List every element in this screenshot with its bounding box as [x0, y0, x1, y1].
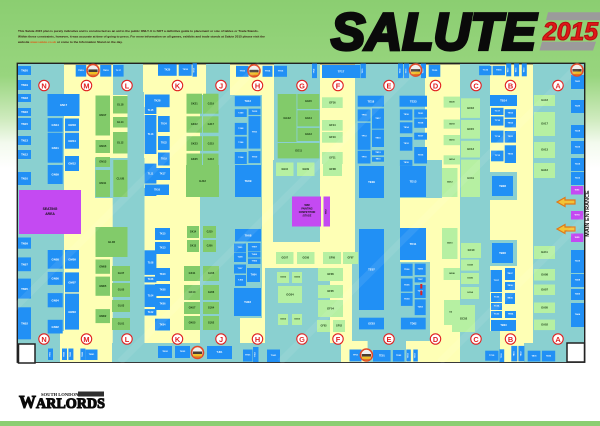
svg-text:GM08: GM08 — [99, 264, 107, 268]
svg-text:GF16: GF16 — [329, 100, 336, 104]
svg-text:GJ12: GJ12 — [199, 179, 206, 183]
svg-text:TF17: TF17 — [338, 70, 345, 74]
svg-text:TJ08: TJ08 — [238, 257, 244, 259]
svg-text:L: L — [125, 81, 130, 90]
svg-text:TD20: TD20 — [432, 70, 438, 72]
svg-text:GA08: GA08 — [541, 272, 548, 276]
svg-text:TL02: TL02 — [148, 311, 154, 314]
svg-text:TE13: TE13 — [375, 152, 381, 154]
svg-text:TH04: TH04 — [251, 274, 258, 277]
svg-text:TH01: TH01 — [245, 355, 251, 357]
svg-text:GC16: GC16 — [467, 106, 474, 110]
svg-text:TN13: TN13 — [21, 139, 28, 143]
svg-text:GN11: GN11 — [52, 146, 60, 150]
svg-text:TH03: TH03 — [244, 300, 251, 304]
svg-text:TN02: TN02 — [21, 322, 28, 326]
svg-text:GG05: GG05 — [280, 277, 287, 279]
svg-text:GL06: GL06 — [108, 240, 115, 244]
svg-text:TA21: TA21 — [575, 80, 581, 83]
svg-text:TK18: TK18 — [183, 69, 189, 71]
svg-text:TE01: TE01 — [379, 354, 385, 357]
svg-text:WS5: WS5 — [575, 237, 581, 239]
svg-text:GG12: GG12 — [283, 116, 291, 120]
svg-text:GL07: GL07 — [118, 271, 125, 275]
svg-text:B: B — [508, 81, 513, 90]
svg-text:TL04: TL04 — [148, 294, 154, 297]
svg-text:GC06: GC06 — [467, 278, 473, 280]
svg-text:TN09: TN09 — [21, 241, 28, 245]
svg-text:TK10: TK10 — [160, 273, 167, 276]
svg-text:TB10: TB10 — [508, 153, 514, 155]
svg-text:TD17: TD17 — [418, 135, 424, 137]
svg-text:GA02: GA02 — [541, 323, 548, 327]
svg-text:TN19: TN19 — [21, 83, 28, 87]
svg-text:GC08: GC08 — [467, 264, 473, 266]
svg-text:GG14: GG14 — [305, 116, 312, 120]
svg-text:TJ07: TJ07 — [238, 268, 244, 270]
svg-text:TH05: TH05 — [252, 260, 258, 262]
svg-text:GD12: GD12 — [447, 182, 453, 184]
svg-text:TH07: TH07 — [252, 246, 258, 248]
svg-text:GC15: GC15 — [467, 127, 474, 131]
svg-text:D: D — [433, 81, 439, 90]
svg-text:TG01: TG01 — [271, 355, 277, 357]
svg-text:TD13: TD13 — [410, 180, 417, 184]
svg-text:GE03: GE03 — [368, 321, 375, 325]
svg-text:TN05: TN05 — [21, 287, 28, 291]
svg-text:GG11: GG11 — [295, 148, 302, 152]
svg-text:TB06: TB06 — [499, 251, 506, 255]
svg-text:L: L — [125, 335, 130, 344]
svg-text:AREA: AREA — [45, 212, 55, 216]
svg-text:TC16: TC16 — [483, 70, 489, 72]
svg-text:GL12: GL12 — [117, 140, 124, 144]
svg-text:TJ01: TJ01 — [217, 350, 223, 354]
svg-text:SALUTE: SALUTE — [331, 4, 537, 62]
svg-text:TK17: TK17 — [160, 173, 167, 176]
svg-text:A: A — [555, 335, 561, 344]
svg-text:GK14: GK14 — [190, 231, 197, 234]
svg-text:TA16: TA16 — [575, 146, 581, 149]
svg-text:GA07: GA07 — [541, 287, 548, 291]
svg-text:GA05: GA05 — [541, 305, 548, 309]
svg-text:SOUTH LONDON: SOUTH LONDON — [41, 392, 79, 397]
svg-text:GG13: GG13 — [305, 132, 312, 136]
svg-text:TN15: TN15 — [21, 122, 28, 126]
svg-text:K: K — [175, 81, 181, 90]
svg-text:M: M — [83, 335, 89, 344]
svg-text:TD15: TD15 — [418, 154, 424, 156]
svg-text:GM15: GM15 — [99, 144, 107, 148]
svg-text:TM05: TM05 — [70, 351, 72, 357]
svg-text:TN07: TN07 — [21, 263, 28, 267]
svg-text:GM13: GM13 — [99, 160, 107, 164]
svg-text:TD11: TD11 — [410, 242, 417, 246]
svg-text:TE11: TE11 — [375, 159, 381, 161]
svg-text:TH15: TH15 — [240, 71, 246, 73]
svg-text:TF13: TF13 — [362, 136, 368, 138]
svg-text:GJ06: GJ06 — [208, 290, 215, 294]
svg-text:TN16: TN16 — [21, 110, 28, 114]
svg-text:TN10: TN10 — [21, 177, 28, 181]
svg-text:TE02: TE02 — [396, 355, 402, 357]
svg-text:TE14: TE14 — [404, 126, 410, 129]
svg-text:TE23: TE23 — [410, 99, 417, 103]
svg-text:TL08: TL08 — [148, 261, 154, 264]
svg-text:GL03: GL03 — [118, 304, 125, 308]
svg-text:GF06: GF06 — [327, 272, 334, 276]
svg-text:J: J — [219, 335, 223, 344]
svg-text:GM11: GM11 — [99, 181, 106, 185]
svg-text:TC03: TC03 — [494, 314, 500, 316]
svg-text:GK21: GK21 — [191, 101, 198, 105]
svg-text:TE17: TE17 — [375, 118, 381, 120]
svg-text:TH10: TH10 — [252, 156, 258, 158]
svg-text:GK25: GK25 — [191, 157, 198, 161]
svg-text:WTG: WTG — [575, 214, 580, 216]
svg-text:TD05: TD05 — [404, 284, 410, 286]
svg-text:TA02: TA02 — [546, 354, 552, 357]
svg-text:TB04: TB04 — [508, 313, 514, 316]
svg-text:GG08: GG08 — [303, 257, 310, 260]
svg-text:TB12: TB12 — [508, 122, 514, 124]
svg-text:TH12: TH12 — [252, 111, 258, 113]
svg-text:GF14: GF14 — [329, 123, 336, 127]
svg-text:GN09: GN09 — [52, 173, 60, 177]
svg-text:GN04: GN04 — [52, 298, 60, 302]
svg-text:F: F — [336, 81, 341, 90]
svg-text:GM14: GM14 — [68, 139, 76, 143]
svg-text:TA20: TA20 — [575, 105, 581, 108]
svg-text:TC05: TC05 — [494, 297, 500, 299]
svg-text:TL13: TL13 — [148, 133, 154, 136]
svg-text:TD18: TD18 — [418, 122, 424, 124]
svg-text:E: E — [387, 335, 392, 344]
svg-text:H: H — [255, 335, 260, 344]
svg-text:2015: 2015 — [542, 18, 599, 46]
svg-text:GC02: GC02 — [460, 317, 468, 321]
svg-text:GD14: GD14 — [449, 158, 455, 161]
svg-text:TD02: TD02 — [410, 321, 417, 325]
svg-text:TM06: TM06 — [64, 351, 66, 357]
svg-text:TJ06: TJ06 — [238, 142, 244, 144]
svg-text:GG03: GG03 — [294, 319, 301, 321]
svg-text:TH11: TH11 — [252, 132, 258, 134]
svg-text:TM18: TM18 — [103, 70, 109, 72]
svg-text:TA10: TA10 — [575, 260, 581, 263]
svg-text:GF06: GF06 — [329, 257, 336, 260]
svg-text:D: D — [433, 335, 439, 344]
svg-text:TB13: TB13 — [508, 113, 514, 115]
svg-text:TE21: TE21 — [418, 113, 424, 115]
svg-text:GJ10: GJ10 — [207, 231, 214, 234]
svg-text:/STAGE: /STAGE — [303, 215, 312, 218]
svg-text:TB08: TB08 — [499, 184, 506, 188]
svg-text:B: B — [508, 335, 513, 344]
svg-text:TC07: TC07 — [494, 280, 500, 282]
svg-text:GM12: GM12 — [68, 162, 76, 166]
svg-text:TM03: TM03 — [82, 351, 84, 357]
svg-text:GD08: GD08 — [449, 273, 455, 275]
svg-text:WS1: WS1 — [575, 189, 581, 191]
svg-text:TA14: TA14 — [575, 163, 581, 166]
svg-text:GF08: GF08 — [329, 167, 336, 171]
svg-text:TK02: TK02 — [162, 351, 168, 353]
svg-text:GM02: GM02 — [99, 314, 107, 318]
svg-text:TJ09: TJ09 — [238, 112, 244, 114]
svg-text:TC14: TC14 — [495, 135, 501, 138]
svg-text:GK05: GK05 — [189, 321, 196, 325]
svg-text:GD10: GD10 — [447, 243, 453, 245]
svg-text:TB14: TB14 — [500, 99, 507, 103]
svg-text:GN02: GN02 — [52, 325, 60, 329]
svg-text:TE15: TE15 — [375, 138, 381, 140]
svg-text:GF05: GF05 — [327, 289, 334, 293]
svg-text:TL06: TL06 — [148, 278, 154, 281]
svg-text:GM18: GM18 — [68, 123, 76, 127]
svg-text:GK11: GK11 — [189, 271, 196, 275]
svg-text:F: F — [336, 335, 341, 344]
svg-text:GL01: GL01 — [118, 322, 125, 326]
svg-text:TF01: TF01 — [353, 355, 359, 357]
svg-text:GD18: GD18 — [449, 123, 455, 125]
svg-text:GG02: GG02 — [280, 319, 287, 321]
svg-text:GC04: GC04 — [467, 291, 473, 294]
svg-text:TK06: TK06 — [160, 303, 167, 306]
svg-text:TH16: TH16 — [278, 71, 284, 73]
svg-text:GL05: GL05 — [118, 288, 125, 292]
svg-text:GD16: GD16 — [449, 139, 455, 141]
svg-text:GG07: GG07 — [282, 257, 289, 260]
svg-text:TK16: TK16 — [154, 188, 161, 191]
svg-text:TC17: TC17 — [495, 111, 501, 113]
svg-text:TK08: TK08 — [160, 289, 167, 292]
svg-text:TB16: TB16 — [496, 70, 502, 72]
svg-text:GA13: GA13 — [541, 148, 548, 152]
svg-text:GM07: GM07 — [68, 281, 76, 285]
svg-text:TA18: TA18 — [575, 130, 581, 133]
svg-text:TD09: TD09 — [418, 269, 424, 271]
svg-text:TC13: TC13 — [495, 155, 501, 157]
svg-text:WS2: WS2 — [326, 209, 328, 215]
svg-text:TK24: TK24 — [161, 123, 168, 126]
svg-text:TD04: TD04 — [404, 298, 410, 301]
svg-text:GN17: GN17 — [60, 103, 68, 107]
svg-text:TB03: TB03 — [500, 323, 507, 327]
svg-text:TC01: TC01 — [489, 355, 495, 357]
svg-text:TJ05: TJ05 — [238, 280, 244, 282]
svg-text:TE09: TE09 — [368, 180, 375, 184]
svg-text:GG15: GG15 — [305, 99, 312, 103]
svg-text:GN06: GN06 — [52, 277, 60, 281]
svg-text:GG04: GG04 — [286, 293, 294, 297]
svg-text:TD06: TD06 — [404, 269, 410, 271]
svg-text:M: M — [83, 81, 89, 90]
svg-text:C: C — [473, 81, 479, 90]
svg-text:TE12: TE12 — [404, 143, 410, 145]
svg-text:GJ17: GJ17 — [208, 122, 215, 126]
svg-text:TE10: TE10 — [404, 162, 410, 164]
svg-text:GM03: GM03 — [68, 310, 76, 314]
svg-text:TK03: TK03 — [180, 351, 186, 353]
svg-text:GL18: GL18 — [117, 102, 124, 106]
svg-text:N: N — [41, 81, 46, 90]
svg-text:TH06: TH06 — [252, 254, 258, 256]
svg-text:GK13: GK13 — [190, 245, 197, 248]
svg-text:TE18: TE18 — [368, 99, 375, 103]
svg-text:GJ12: GJ12 — [208, 157, 215, 161]
svg-text:GN14: GN14 — [52, 123, 60, 127]
svg-text:This Salute 2015 plan is purel: This Salute 2015 plan is purely indicati… — [18, 29, 259, 33]
svg-text:K: K — [175, 335, 181, 344]
svg-text:TB07: TB07 — [507, 273, 513, 275]
svg-text:GF02: GF02 — [336, 325, 343, 328]
svg-text:TM19: TM19 — [78, 70, 84, 72]
svg-text:SEATING: SEATING — [43, 207, 58, 211]
svg-text:Within these constraints, howe: Within these constraints, however, it wa… — [18, 35, 265, 39]
svg-text:TN12: TN12 — [21, 153, 28, 157]
svg-text:TF10: TF10 — [362, 156, 368, 158]
svg-text:TL15: TL15 — [148, 109, 154, 112]
svg-text:G: G — [299, 81, 305, 90]
svg-text:GF07: GF07 — [348, 257, 355, 260]
svg-text:TK22: TK22 — [161, 142, 168, 145]
svg-text:GK23: GK23 — [191, 141, 198, 145]
svg-text:GL14: GL14 — [117, 120, 124, 124]
svg-text:GM05: GM05 — [99, 284, 107, 288]
svg-text:GK07: GK07 — [189, 306, 196, 310]
svg-text:TL17: TL17 — [116, 70, 122, 72]
svg-text:J: J — [219, 81, 223, 90]
svg-text:GF13: GF13 — [329, 135, 336, 139]
svg-text:TJ04: TJ04 — [238, 156, 244, 159]
svg-text:TE16: TE16 — [404, 114, 410, 116]
svg-text:TA06: TA06 — [575, 293, 581, 296]
svg-text:GJ06: GJ06 — [207, 245, 214, 248]
svg-text:TH14: TH14 — [265, 70, 271, 73]
svg-text:GJ15: GJ15 — [208, 141, 215, 145]
svg-text:GJ02: GJ02 — [208, 321, 215, 325]
svg-text:TA04: TA04 — [575, 313, 581, 316]
svg-text:TD03: TD03 — [418, 306, 424, 308]
svg-text:TA01: TA01 — [531, 354, 537, 357]
svg-text:TN20: TN20 — [21, 69, 28, 73]
svg-text:CLUB: CLUB — [117, 177, 125, 181]
svg-text:TH13: TH13 — [244, 99, 251, 103]
svg-text:GG10: GG10 — [282, 168, 289, 171]
svg-text:GM17: GM17 — [99, 113, 107, 117]
svg-text:GD20: GD20 — [449, 101, 455, 103]
svg-text:GC10: GC10 — [468, 248, 475, 252]
svg-text:GA12: GA12 — [541, 168, 548, 172]
svg-text:C: C — [473, 335, 479, 344]
svg-text:GG06: GG06 — [294, 277, 301, 279]
svg-text:TC16: TC16 — [495, 120, 501, 122]
svg-text:H: H — [255, 81, 260, 90]
svg-text:TA08: TA08 — [575, 279, 581, 282]
svg-text:website www.salute.co.uk or co: website www.salute.co.uk or come to the … — [17, 40, 123, 44]
svg-text:TN18: TN18 — [21, 96, 28, 100]
svg-text:TM01: TM01 — [89, 354, 95, 356]
svg-text:TK13: TK13 — [160, 247, 167, 250]
svg-text:GJ04: GJ04 — [208, 306, 215, 310]
svg-text:TK15: TK15 — [160, 233, 167, 236]
svg-text:GJ19: GJ19 — [208, 101, 215, 105]
svg-text:TA12: TA12 — [575, 177, 581, 180]
svg-text:GA17: GA17 — [541, 122, 548, 126]
svg-text:GC13: GC13 — [467, 147, 474, 151]
svg-text:TH09: TH09 — [245, 179, 252, 183]
svg-text:N: N — [41, 335, 46, 344]
svg-text:TK28: TK28 — [154, 99, 161, 103]
svg-text:TK20: TK20 — [164, 69, 171, 72]
svg-text:TJ08: TJ08 — [238, 128, 244, 130]
